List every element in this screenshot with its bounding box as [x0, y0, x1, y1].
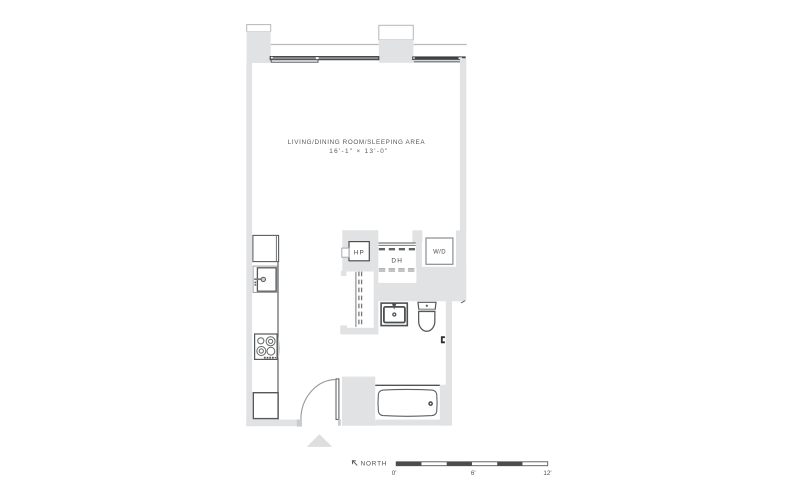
svg-text:12': 12' — [543, 470, 551, 477]
svg-text:0': 0' — [392, 470, 397, 477]
svg-text:16'-1" × 13'-0": 16'-1" × 13'-0" — [329, 148, 389, 155]
svg-text:HP: HP — [354, 250, 365, 257]
svg-text:6': 6' — [471, 470, 476, 477]
svg-text:DH: DH — [391, 258, 403, 265]
svg-text:NORTH: NORTH — [361, 460, 388, 467]
svg-text:W/D: W/D — [433, 250, 446, 256]
svg-text:LIVING/DINING ROOM/SLEEPING AR: LIVING/DINING ROOM/SLEEPING AREA — [288, 139, 426, 146]
